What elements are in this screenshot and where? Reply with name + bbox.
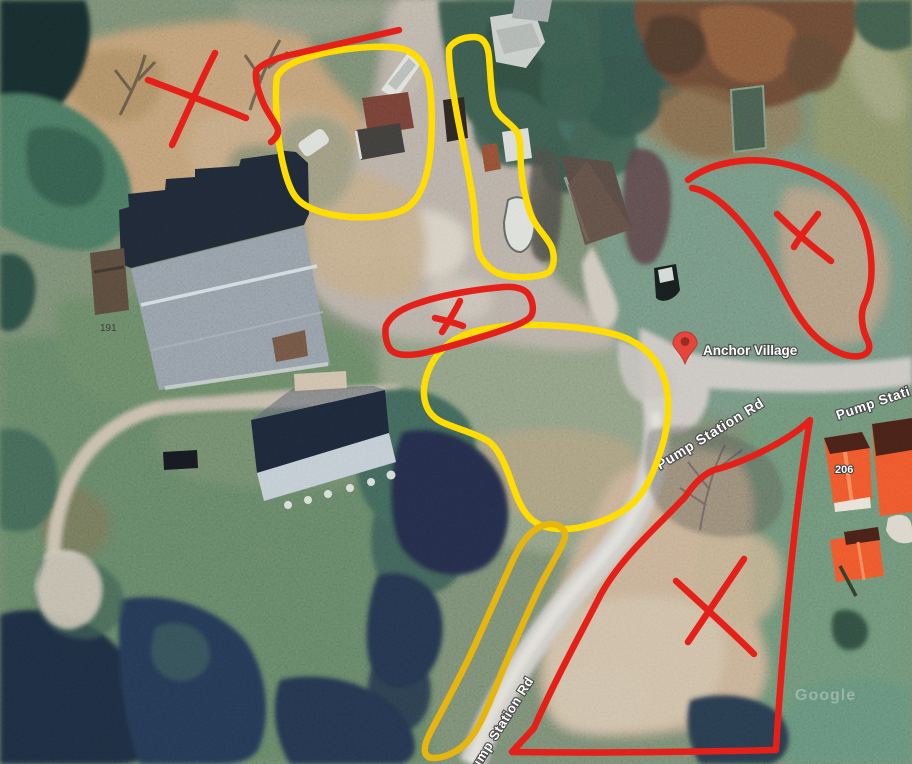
svg-text:206: 206 — [835, 464, 853, 476]
svg-text:Google: Google — [795, 687, 856, 704]
svg-text:Anchor Village: Anchor Village — [703, 343, 798, 358]
svg-text:191: 191 — [100, 323, 117, 334]
